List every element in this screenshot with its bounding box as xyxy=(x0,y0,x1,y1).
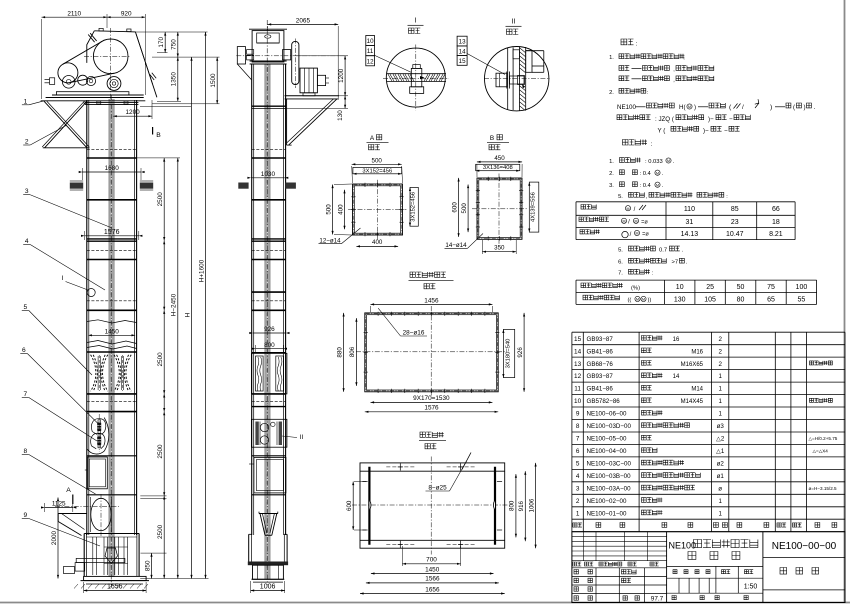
svg-text:GB93−87: GB93−87 xyxy=(587,336,614,343)
svg-text:1:50: 1:50 xyxy=(744,583,758,590)
svg-text:): ) xyxy=(694,104,696,111)
svg-text:170: 170 xyxy=(158,37,165,48)
svg-text:2: 2 xyxy=(576,498,580,505)
svg-text:8−ø25: 8−ø25 xyxy=(428,485,447,492)
svg-text:926: 926 xyxy=(264,326,275,333)
svg-text:2500: 2500 xyxy=(157,192,164,207)
svg-text:.: . xyxy=(814,104,816,111)
svg-text:NE100−06−00: NE100−06−00 xyxy=(587,411,627,418)
svg-text:1576: 1576 xyxy=(424,405,439,412)
svg-text:I: I xyxy=(415,18,417,25)
svg-text:806: 806 xyxy=(349,346,356,357)
svg-text:12: 12 xyxy=(367,58,374,65)
svg-text:8: 8 xyxy=(576,423,580,430)
svg-text:3X136=408: 3X136=408 xyxy=(483,165,513,171)
svg-text:65: 65 xyxy=(767,296,775,303)
svg-text:5.: 5. xyxy=(618,194,623,200)
svg-text:GB93−87: GB93−87 xyxy=(587,373,614,380)
svg-text:△2: △2 xyxy=(716,436,725,443)
svg-text:1576: 1576 xyxy=(104,229,120,236)
svg-text:750: 750 xyxy=(171,39,178,50)
svg-text:5: 5 xyxy=(23,304,27,311)
svg-text:10: 10 xyxy=(367,38,374,45)
svg-text:NE100−00−00: NE100−00−00 xyxy=(772,541,837,552)
svg-text:916: 916 xyxy=(518,500,525,511)
svg-text:14−ø14: 14−ø14 xyxy=(445,242,467,249)
svg-text:ø1: ø1 xyxy=(717,473,725,480)
svg-text:10: 10 xyxy=(676,284,684,291)
svg-text:80: 80 xyxy=(737,296,745,303)
svg-text:2.: 2. xyxy=(609,171,614,177)
svg-text:2.: 2. xyxy=(609,90,614,96)
svg-text:1566: 1566 xyxy=(425,576,440,583)
svg-text:105: 105 xyxy=(704,296,716,303)
svg-text:NE100−03D−00: NE100−03D−00 xyxy=(587,423,632,430)
svg-text:400: 400 xyxy=(372,239,383,246)
svg-text:3: 3 xyxy=(25,188,29,195)
svg-text:GB41−86: GB41−86 xyxy=(587,348,614,355)
svg-text:M: M xyxy=(636,232,639,236)
svg-text:9X170=1530: 9X170=1530 xyxy=(413,395,450,402)
svg-text:A: A xyxy=(66,487,71,494)
svg-text:I: I xyxy=(62,275,64,282)
svg-text:GB5782−86: GB5782−86 xyxy=(587,398,621,405)
svg-text:NE100−05−00: NE100−05−00 xyxy=(587,436,627,443)
svg-text:13: 13 xyxy=(574,361,582,368)
svg-text:)−: )− xyxy=(708,116,714,123)
svg-text:3X180=540: 3X180=540 xyxy=(506,339,512,369)
svg-text:1: 1 xyxy=(24,98,28,105)
svg-text:M14: M14 xyxy=(691,387,703,393)
svg-text:H−2450: H−2450 xyxy=(171,293,178,316)
svg-text:NE100: NE100 xyxy=(669,541,697,551)
svg-text:15: 15 xyxy=(459,58,466,65)
svg-text:M: M xyxy=(656,171,659,175)
svg-text:2: 2 xyxy=(718,336,722,343)
svg-text:700: 700 xyxy=(426,557,437,564)
svg-text:B: B xyxy=(490,135,494,142)
svg-text:16: 16 xyxy=(673,337,680,343)
svg-text:ø: ø xyxy=(718,486,722,493)
svg-text:10.47: 10.47 xyxy=(726,231,744,238)
svg-text:/: / xyxy=(742,104,744,111)
svg-text:NE100−03A−00: NE100−03A−00 xyxy=(587,486,632,493)
svg-text:M14X45: M14X45 xyxy=(681,399,704,405)
svg-text:920: 920 xyxy=(121,10,132,17)
svg-text:((: (( xyxy=(628,298,632,304)
svg-text:M: M xyxy=(642,298,645,302)
svg-text:110: 110 xyxy=(684,206,695,213)
svg-text:M16X65: M16X65 xyxy=(681,362,704,368)
svg-text:926: 926 xyxy=(517,347,524,358)
svg-text:: JZQ (: : JZQ ( xyxy=(655,116,675,123)
svg-text:3: 3 xyxy=(576,486,580,493)
svg-text:NE100: NE100 xyxy=(617,104,636,111)
svg-text:M16: M16 xyxy=(691,349,703,355)
svg-text:1680: 1680 xyxy=(105,165,120,172)
svg-text:10: 10 xyxy=(574,398,582,405)
svg-text:3.: 3. xyxy=(609,183,614,189)
svg-text:1030: 1030 xyxy=(261,171,276,178)
svg-text:=ø: =ø xyxy=(642,232,649,238)
svg-text:−: − xyxy=(724,127,728,134)
svg-text:): ) xyxy=(770,104,772,111)
svg-text:7.: 7. xyxy=(618,271,623,277)
svg-text::: : xyxy=(652,271,654,277)
svg-text:.: . xyxy=(707,77,709,83)
svg-text:2: 2 xyxy=(25,139,29,146)
svg-text:500: 500 xyxy=(325,204,332,215)
svg-text:1006: 1006 xyxy=(260,584,276,591)
svg-text:450: 450 xyxy=(494,155,505,162)
svg-text:△1: △1 xyxy=(716,448,725,455)
svg-text:2000: 2000 xyxy=(51,530,58,545)
svg-text:NE100−02−00: NE100−02−00 xyxy=(587,498,627,505)
svg-text:13: 13 xyxy=(459,39,466,46)
svg-text:25: 25 xyxy=(706,284,714,291)
svg-text:1656: 1656 xyxy=(107,584,123,591)
svg-text::: : xyxy=(651,141,653,148)
svg-text:M: M xyxy=(627,207,630,211)
svg-text:1: 1 xyxy=(718,411,722,418)
svg-text:2500: 2500 xyxy=(157,352,164,367)
svg-text:1200: 1200 xyxy=(338,68,345,83)
svg-text:5.: 5. xyxy=(618,248,623,254)
svg-text:75: 75 xyxy=(767,284,775,291)
svg-text:7: 7 xyxy=(576,436,580,443)
svg-text:31: 31 xyxy=(686,219,694,226)
svg-text:130: 130 xyxy=(674,296,686,303)
svg-text:ø3: ø3 xyxy=(717,423,725,430)
svg-text:2065: 2065 xyxy=(296,18,311,25)
svg-text:55: 55 xyxy=(798,296,806,303)
svg-text:.: . xyxy=(707,67,709,73)
svg-text:: 0.4: : 0.4 xyxy=(640,183,652,189)
svg-text:1125: 1125 xyxy=(52,501,66,508)
svg-text:H: H xyxy=(184,312,191,317)
svg-text:M: M xyxy=(635,219,638,223)
svg-text:12: 12 xyxy=(574,373,582,380)
svg-text:2: 2 xyxy=(718,361,722,368)
svg-text:II: II xyxy=(300,434,304,441)
svg-text:4: 4 xyxy=(25,238,29,245)
svg-text:8.21: 8.21 xyxy=(769,231,783,238)
svg-text:1: 1 xyxy=(718,386,722,393)
svg-text:880: 880 xyxy=(336,347,343,358)
svg-text:(%): (%) xyxy=(631,285,640,291)
svg-text:)−: )− xyxy=(703,127,709,134)
svg-text:=ø: =ø xyxy=(641,219,648,225)
svg-text:1: 1 xyxy=(718,498,722,505)
svg-text:18: 18 xyxy=(772,219,780,226)
svg-text:ø=H−3.15/2.5: ø=H−3.15/2.5 xyxy=(809,486,838,491)
svg-text:M: M xyxy=(636,298,639,302)
svg-text:8: 8 xyxy=(23,448,27,455)
svg-text:): ) xyxy=(804,104,806,111)
svg-text:3X152=456: 3X152=456 xyxy=(362,168,392,174)
svg-text:2500: 2500 xyxy=(157,524,164,539)
svg-text:Y (: Y ( xyxy=(658,127,667,134)
svg-text:600: 600 xyxy=(346,500,353,511)
svg-text:14: 14 xyxy=(574,348,582,355)
svg-text:14: 14 xyxy=(673,374,680,380)
svg-text:1.: 1. xyxy=(609,159,614,165)
svg-text:M: M xyxy=(623,219,626,223)
svg-text:800: 800 xyxy=(264,342,275,349)
svg-text:1450: 1450 xyxy=(105,329,120,336)
svg-text:1.: 1. xyxy=(609,55,614,61)
svg-text:400: 400 xyxy=(337,204,344,215)
svg-text:28−ø16: 28−ø16 xyxy=(403,330,425,337)
svg-text:: 0.033: : 0.033 xyxy=(645,159,663,165)
svg-text:1200: 1200 xyxy=(125,109,140,116)
svg-text:NE100−03B−00: NE100−03B−00 xyxy=(587,473,632,480)
svg-text:130: 130 xyxy=(337,110,344,121)
svg-text:14.13: 14.13 xyxy=(681,231,699,238)
svg-text:12−ø14: 12−ø14 xyxy=(319,237,341,244)
svg-text:9: 9 xyxy=(576,411,580,418)
svg-text:ø2: ø2 xyxy=(717,461,725,468)
svg-text:)): )) xyxy=(648,298,652,304)
svg-text::: : xyxy=(647,90,649,96)
svg-text:0.7: 0.7 xyxy=(659,248,667,254)
svg-text:NE100−03C−00: NE100−03C−00 xyxy=(587,461,632,468)
svg-text:85: 85 xyxy=(731,206,739,213)
svg-text:1: 1 xyxy=(718,398,722,405)
svg-text:2: 2 xyxy=(718,348,722,355)
svg-text:14: 14 xyxy=(459,48,466,55)
svg-text:1450: 1450 xyxy=(425,566,440,573)
svg-text:5: 5 xyxy=(576,461,580,468)
svg-text:6: 6 xyxy=(22,347,26,354)
svg-text::: : xyxy=(726,194,728,200)
svg-text:500: 500 xyxy=(461,203,468,214)
svg-text:6: 6 xyxy=(576,448,580,455)
svg-text:NE100−04−00: NE100−04−00 xyxy=(587,448,627,455)
svg-text:>7: >7 xyxy=(672,260,679,266)
svg-text:100: 100 xyxy=(796,284,808,291)
svg-text:B: B xyxy=(156,132,161,139)
svg-text:: 0.4: : 0.4 xyxy=(640,171,652,177)
svg-text:1: 1 xyxy=(718,510,722,517)
svg-text:A: A xyxy=(370,135,375,142)
svg-text:1500: 1500 xyxy=(210,73,217,88)
svg-text:11: 11 xyxy=(367,48,374,55)
svg-text:−: − xyxy=(729,116,733,123)
svg-text:M: M xyxy=(688,105,691,109)
svg-text:M: M xyxy=(656,183,659,187)
svg-text:97.7: 97.7 xyxy=(651,596,664,603)
svg-text:4X139=556: 4X139=556 xyxy=(531,192,537,222)
svg-text:9: 9 xyxy=(23,512,27,519)
svg-text:1350: 1350 xyxy=(171,72,178,87)
svg-text:H(: H( xyxy=(679,104,686,111)
svg-text:6.: 6. xyxy=(618,260,623,266)
svg-text:△=H/0.2+5.75: △=H/0.2+5.75 xyxy=(809,436,838,441)
svg-text:H+1600: H+1600 xyxy=(198,259,205,282)
svg-text:1: 1 xyxy=(576,510,580,517)
svg-text:500: 500 xyxy=(372,158,383,165)
svg-text:3X152=456: 3X152=456 xyxy=(411,192,417,222)
svg-text:50: 50 xyxy=(737,284,745,291)
svg-text:1656: 1656 xyxy=(425,586,440,593)
svg-text::: : xyxy=(636,41,638,48)
svg-text:M: M xyxy=(667,159,670,163)
svg-text:1456: 1456 xyxy=(424,298,439,305)
svg-text:△=△X4: △=△X4 xyxy=(813,449,829,454)
svg-text:2500: 2500 xyxy=(157,444,164,459)
svg-text:800: 800 xyxy=(509,500,516,511)
svg-text:II: II xyxy=(512,19,516,26)
svg-text:2110: 2110 xyxy=(67,10,81,17)
svg-text:600: 600 xyxy=(451,202,458,213)
svg-text:850: 850 xyxy=(144,560,151,571)
svg-text:23: 23 xyxy=(731,219,739,226)
svg-text:1006: 1006 xyxy=(528,498,535,512)
svg-text:350: 350 xyxy=(494,245,505,252)
svg-text:NE100−01−00: NE100−01−00 xyxy=(587,510,627,517)
svg-text:1: 1 xyxy=(718,373,722,380)
svg-text:66: 66 xyxy=(772,206,780,213)
svg-text:4: 4 xyxy=(576,473,580,480)
svg-text:GB41−86: GB41−86 xyxy=(587,386,614,393)
svg-text:15: 15 xyxy=(574,336,582,343)
svg-text:7: 7 xyxy=(23,391,27,398)
svg-text:GB68−76: GB68−76 xyxy=(587,361,614,368)
svg-text:11: 11 xyxy=(574,386,581,393)
